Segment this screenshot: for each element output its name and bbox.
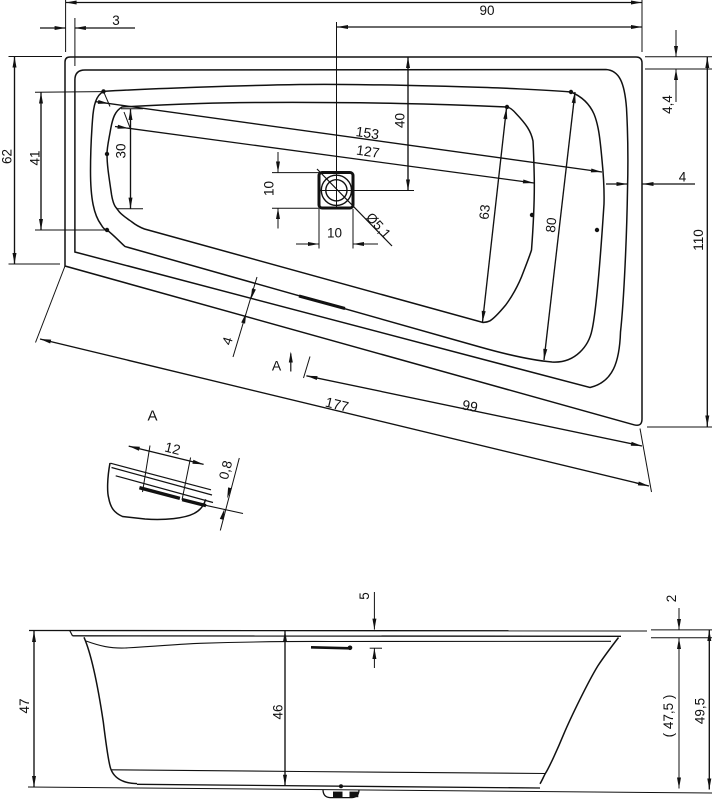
svg-text:3: 3 — [112, 13, 120, 28]
svg-text:2: 2 — [664, 595, 679, 603]
svg-text:30: 30 — [114, 143, 129, 158]
svg-text:63: 63 — [476, 204, 492, 221]
svg-text:4,4: 4,4 — [660, 95, 675, 114]
svg-text:90: 90 — [479, 3, 494, 18]
svg-text:127: 127 — [355, 142, 381, 161]
svg-text:( 47,5 ): ( 47,5 ) — [661, 695, 676, 738]
svg-text:4: 4 — [679, 170, 687, 185]
svg-text:62: 62 — [0, 149, 15, 164]
svg-text:46: 46 — [271, 704, 286, 719]
svg-text:41: 41 — [28, 150, 43, 165]
svg-text:10: 10 — [327, 226, 342, 241]
svg-text:47: 47 — [17, 698, 32, 713]
svg-text:A: A — [272, 357, 282, 373]
svg-text:80: 80 — [543, 217, 559, 234]
svg-text:10: 10 — [262, 181, 277, 196]
svg-text:110: 110 — [691, 229, 706, 251]
svg-text:49,5: 49,5 — [693, 698, 708, 724]
svg-text:153: 153 — [355, 123, 381, 142]
svg-text:5: 5 — [357, 592, 372, 600]
svg-text:40: 40 — [393, 113, 408, 128]
svg-text:A: A — [147, 408, 157, 425]
